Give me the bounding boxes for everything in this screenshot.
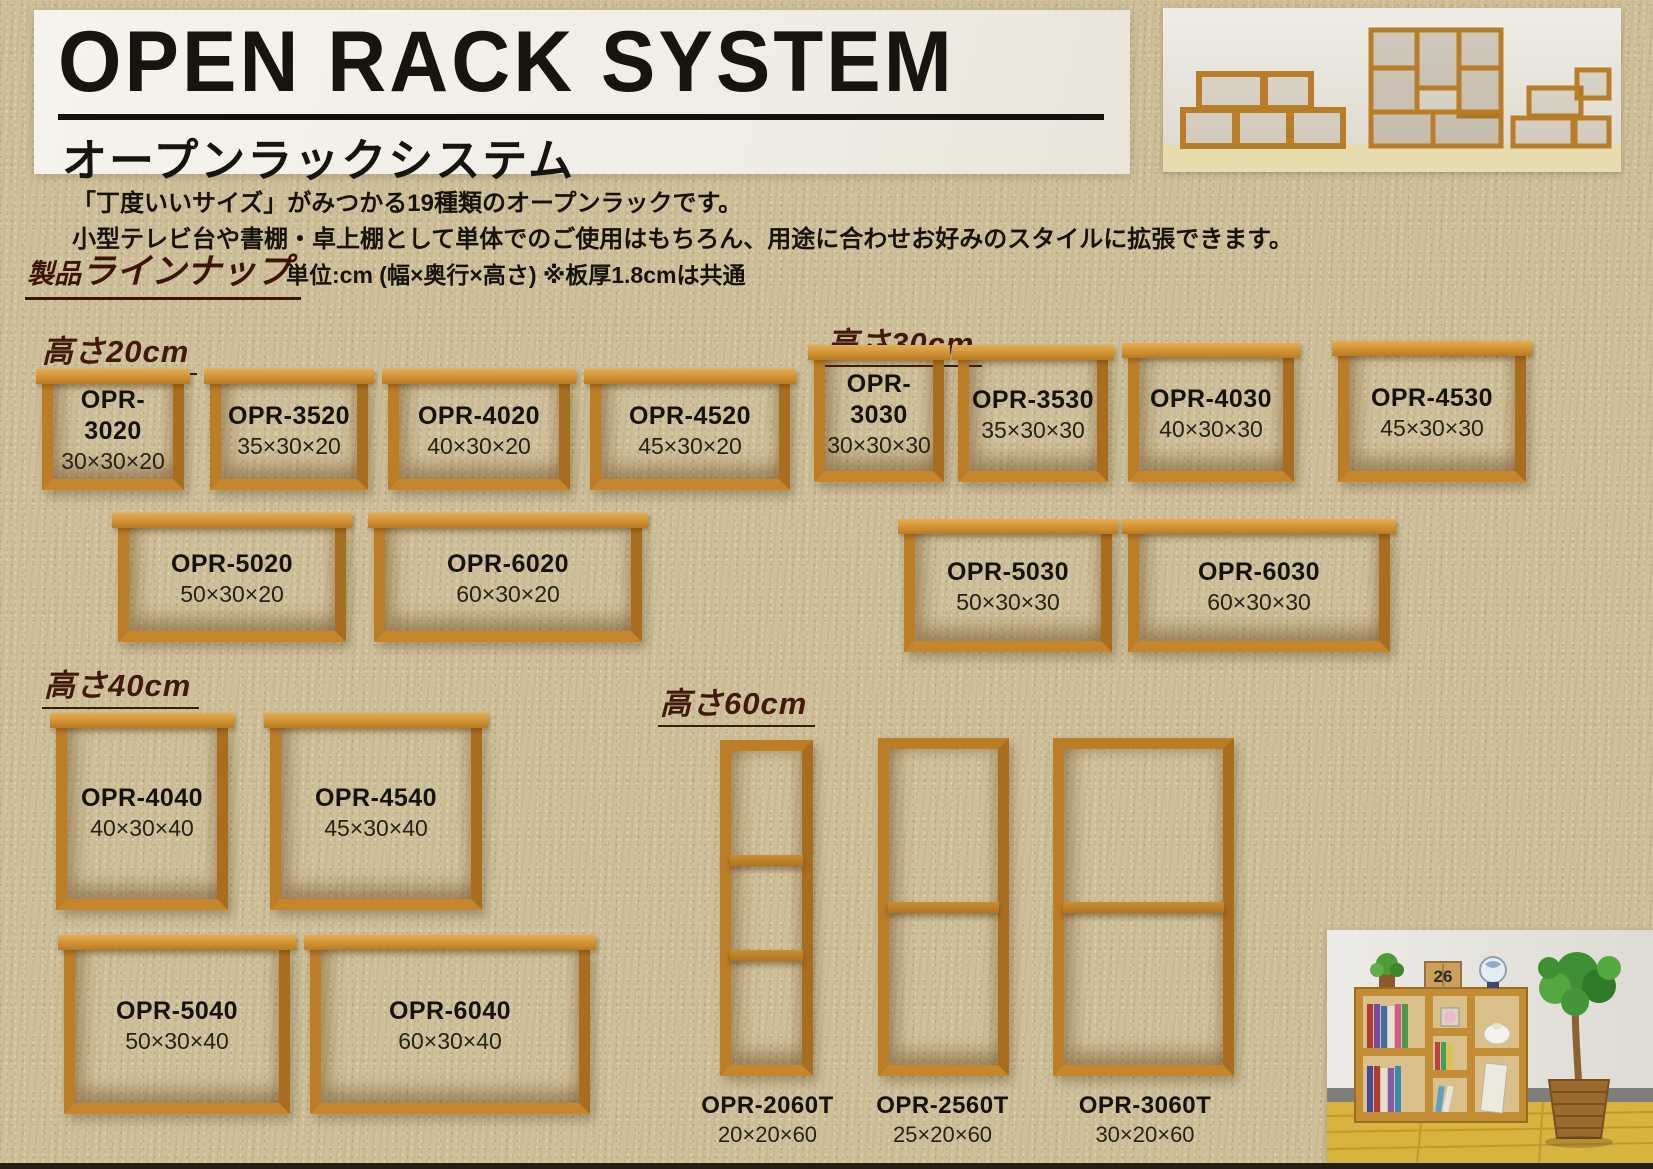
product-size: 60×30×20 bbox=[456, 580, 560, 609]
calendar-day: 26 bbox=[1434, 967, 1453, 986]
rack-label: OPR-3530 35×30×30 bbox=[969, 358, 1097, 471]
rack-opr-6040: OPR-6040 60×30×40 bbox=[310, 948, 590, 1114]
rack-opr-3030: OPR-3030 30×30×30 bbox=[814, 358, 944, 482]
rack-label: OPR-3030 30×30×30 bbox=[825, 358, 933, 471]
product-size: 25×20×60 bbox=[845, 1121, 1040, 1150]
rack-opr-5020: OPR-5020 50×30×20 bbox=[118, 526, 346, 642]
product-size: 50×30×30 bbox=[956, 588, 1060, 617]
rack-label-opr-2060t: OPR-2060T 20×20×60 bbox=[690, 1090, 845, 1150]
lineup-heading: 製品ラインナップ bbox=[25, 243, 301, 300]
kitchen-scale bbox=[1441, 1008, 1459, 1026]
rack-label: OPR-6040 60×30×40 bbox=[321, 948, 579, 1103]
rack-label: OPR-4040 40×30×40 bbox=[67, 726, 217, 899]
product-model: OPR-6030 bbox=[1198, 557, 1320, 588]
rack-opr-4520: OPR-4520 45×30×20 bbox=[590, 382, 790, 490]
product-size: 50×30×20 bbox=[180, 580, 284, 609]
product-model: OPR-3530 bbox=[972, 385, 1094, 416]
product-size: 20×20×60 bbox=[690, 1121, 845, 1150]
product-size: 35×30×20 bbox=[237, 432, 341, 461]
title-underline bbox=[58, 114, 1104, 120]
product-size: 30×30×20 bbox=[61, 447, 165, 476]
product-model: OPR-2060T bbox=[690, 1090, 845, 1121]
rack-shelf bbox=[730, 950, 803, 961]
product-size: 45×30×40 bbox=[324, 814, 428, 843]
lifestyle-photo-illustration: 26 bbox=[1327, 930, 1653, 1163]
rack-opr-5030: OPR-5030 50×30×30 bbox=[904, 532, 1112, 652]
product-model: OPR-4040 bbox=[81, 783, 203, 814]
product-model: OPR-4520 bbox=[629, 401, 751, 432]
product-model: OPR-4530 bbox=[1371, 383, 1493, 414]
lifestyle-photo: 26 bbox=[1327, 930, 1653, 1163]
rack-label: OPR-4540 45×30×40 bbox=[281, 726, 471, 899]
rack-label: OPR-4020 40×30×20 bbox=[399, 382, 559, 479]
lineup-heading-prefix: 製品 bbox=[27, 259, 81, 289]
rack-label: OPR-3020 30×30×20 bbox=[53, 382, 173, 479]
rack-label: OPR-6020 60×30×20 bbox=[385, 526, 631, 631]
page-title: OPEN RACK SYSTEM bbox=[58, 12, 955, 111]
rack-label: OPR-4030 40×30×30 bbox=[1139, 356, 1283, 471]
product-size: 30×20×60 bbox=[1045, 1121, 1245, 1150]
product-size: 50×30×40 bbox=[125, 1027, 229, 1056]
product-model: OPR-5030 bbox=[947, 557, 1069, 588]
showcase-photo bbox=[1163, 8, 1621, 172]
product-size: 45×30×20 bbox=[638, 432, 742, 461]
product-model: OPR-5020 bbox=[171, 549, 293, 580]
section-heading-40cm: 高さ40cm bbox=[42, 660, 199, 709]
product-model: OPR-4030 bbox=[1150, 384, 1272, 415]
open-rack-flyer: { "header": { "title": "OPEN RACK SYSTEM… bbox=[0, 0, 1653, 1169]
product-model: OPR-3020 bbox=[53, 385, 173, 448]
section-heading-60cm: 高さ60cm bbox=[658, 678, 815, 727]
header-banner: OPEN RACK SYSTEM オープンラックシステム bbox=[34, 10, 1130, 174]
rack-label-opr-2560t: OPR-2560T 25×20×60 bbox=[845, 1090, 1040, 1150]
product-size: 35×30×30 bbox=[981, 416, 1085, 445]
rack-opr-4540: OPR-4540 45×30×40 bbox=[270, 726, 482, 910]
rack-opr-3520: OPR-3520 35×30×20 bbox=[210, 382, 368, 490]
rack-opr-2060t bbox=[720, 740, 813, 1076]
rack-opr-4530: OPR-4530 45×30×30 bbox=[1338, 354, 1526, 482]
product-size: 60×30×40 bbox=[398, 1027, 502, 1056]
product-model: OPR-4540 bbox=[315, 783, 437, 814]
rack-opr-3530: OPR-3530 35×30×30 bbox=[958, 358, 1108, 482]
product-model: OPR-6040 bbox=[389, 996, 511, 1027]
rack-opr-3020: OPR-3020 30×30×20 bbox=[42, 382, 184, 490]
rack-shelf bbox=[730, 855, 803, 866]
rack-shelf bbox=[888, 902, 999, 913]
product-model: OPR-3030 bbox=[825, 369, 933, 432]
showcase-photo-illustration bbox=[1163, 8, 1621, 172]
rack-label: OPR-3520 35×30×20 bbox=[221, 382, 357, 479]
product-model: OPR-2560T bbox=[845, 1090, 1040, 1121]
page-subtitle: オープンラックシステム bbox=[62, 124, 575, 189]
product-model: OPR-5040 bbox=[116, 996, 238, 1027]
rack-label: OPR-5020 50×30×20 bbox=[129, 526, 335, 631]
unit-note: 単位:cm (幅×奥行×高さ) ※板厚1.8cmは共通 bbox=[286, 256, 745, 290]
product-size: 30×30×30 bbox=[827, 431, 931, 460]
rack-opr-4040: OPR-4040 40×30×40 bbox=[56, 726, 228, 910]
lineup-heading-main: ラインナップ bbox=[81, 252, 291, 291]
rack-opr-6020: OPR-6020 60×30×20 bbox=[374, 526, 642, 642]
shelf-unit bbox=[1355, 988, 1527, 1122]
rack-label-opr-3060t: OPR-3060T 30×20×60 bbox=[1045, 1090, 1245, 1150]
rack-opr-4030: OPR-4030 40×30×30 bbox=[1128, 356, 1294, 482]
product-size: 45×30×30 bbox=[1380, 414, 1484, 443]
product-size: 60×30×30 bbox=[1207, 588, 1311, 617]
rack-opr-5040: OPR-5040 50×30×40 bbox=[64, 948, 290, 1114]
rack-opr-3060t bbox=[1053, 738, 1234, 1076]
product-model: OPR-3060T bbox=[1045, 1090, 1245, 1121]
rack-label: OPR-6030 60×30×30 bbox=[1139, 532, 1379, 641]
product-size: 40×30×40 bbox=[90, 814, 194, 843]
product-model: OPR-4020 bbox=[418, 401, 540, 432]
rack-label: OPR-4530 45×30×30 bbox=[1349, 354, 1515, 471]
rack-opr-2560t bbox=[878, 738, 1009, 1076]
rack-opr-6030: OPR-6030 60×30×30 bbox=[1128, 532, 1390, 652]
page-bottom-edge bbox=[0, 1163, 1653, 1169]
intro-line-1: 「丁度いいサイズ」がみつかる19種類のオープンラックです。 bbox=[72, 186, 1293, 222]
rack-opr-4020: OPR-4020 40×30×20 bbox=[388, 382, 570, 490]
product-size: 40×30×30 bbox=[1159, 415, 1263, 444]
product-model: OPR-6020 bbox=[447, 549, 569, 580]
rack-group-center bbox=[1371, 30, 1501, 146]
calendar-block: 26 bbox=[1425, 962, 1461, 988]
rack-shelf bbox=[1063, 902, 1224, 913]
rack-label: OPR-5030 50×30×30 bbox=[915, 532, 1101, 641]
rack-label: OPR-5040 50×30×40 bbox=[75, 948, 279, 1103]
product-size: 40×30×20 bbox=[427, 432, 531, 461]
section-heading-20cm: 高さ20cm bbox=[40, 326, 197, 375]
rack-label: OPR-4520 45×30×20 bbox=[601, 382, 779, 479]
product-model: OPR-3520 bbox=[228, 401, 350, 432]
